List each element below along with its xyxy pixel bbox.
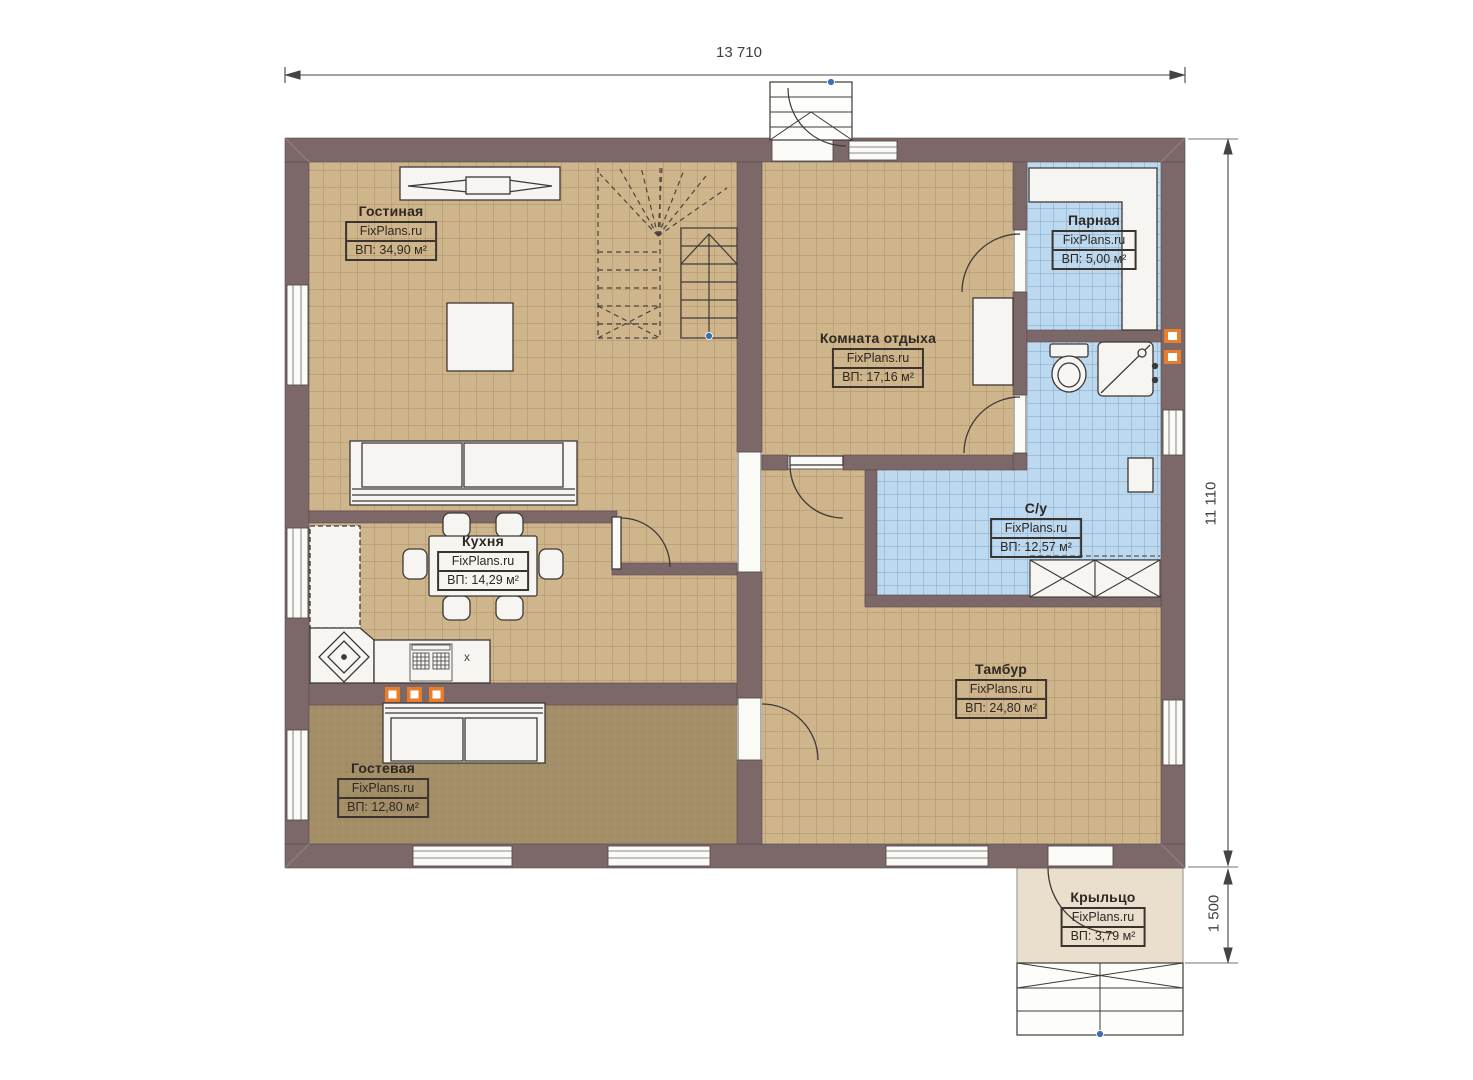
room-label-lounge: Комната отдыха FixPlans.ru ВП: 17,16 м² <box>820 330 936 388</box>
room-brand: FixPlans.ru <box>992 520 1080 539</box>
room-area: ВП: 17,16 м² <box>834 369 922 386</box>
sofa <box>350 441 577 505</box>
porch-steps <box>1017 963 1183 1038</box>
entry-steps-top <box>770 79 852 147</box>
window-bottom-3 <box>886 846 988 866</box>
room-name: Парная <box>1052 212 1137 228</box>
window-top <box>849 141 897 160</box>
coffee-table <box>447 303 513 371</box>
chair <box>496 596 523 620</box>
window-left-3 <box>287 730 308 820</box>
kitchen-door-leaf <box>612 517 621 569</box>
room-name: Гостиная <box>345 203 437 219</box>
entry-marker-top <box>828 79 835 86</box>
doorway-guest <box>738 698 761 760</box>
room-area: ВП: 12,57 м² <box>992 539 1080 556</box>
room-name: С/у <box>990 500 1082 516</box>
room-brand: FixPlans.ru <box>1054 232 1135 251</box>
chair <box>443 596 470 620</box>
room-area: ВП: 34,90 м² <box>347 242 435 259</box>
window-left-1 <box>287 285 308 385</box>
entry-opening-bottom <box>1048 846 1113 866</box>
dimension-height: 11 110 <box>1203 460 1220 548</box>
room-brand: FixPlans.ru <box>347 223 435 242</box>
dimension-porch-depth: 1 500 <box>1206 870 1223 958</box>
stair-start-marker <box>706 333 713 340</box>
room-name: Комната отдыха <box>820 330 936 346</box>
room-area: ВП: 5,00 м² <box>1054 251 1135 268</box>
floor-plan-drawing <box>0 0 1473 1080</box>
room-info-box: FixPlans.ru ВП: 24,80 м² <box>955 679 1047 719</box>
room-name: Гостевая <box>337 760 429 776</box>
guest-sofa <box>383 703 545 763</box>
room-label-living-room: Гостиная FixPlans.ru ВП: 34,90 м² <box>345 203 437 261</box>
room-info-box: FixPlans.ru ВП: 17,16 м² <box>832 348 924 388</box>
room-area: ВП: 12,80 м² <box>339 799 427 816</box>
room-label-kitchen: Кухня FixPlans.ru ВП: 14,29 м² <box>437 533 529 591</box>
chair <box>403 549 427 579</box>
room-brand: FixPlans.ru <box>957 681 1045 700</box>
room-brand: FixPlans.ru <box>1063 909 1144 928</box>
room-info-box: FixPlans.ru ВП: 34,90 м² <box>345 221 437 261</box>
lounge-door-leaf <box>790 456 843 465</box>
room-name: Кухня <box>437 533 529 549</box>
stove-marker-label: x <box>464 650 470 664</box>
room-info-box: FixPlans.ru ВП: 12,80 м² <box>337 778 429 818</box>
doorway-corridor <box>738 452 761 572</box>
room-brand: FixPlans.ru <box>439 553 527 572</box>
window-right-2 <box>1163 700 1183 765</box>
window-left-2 <box>287 528 308 618</box>
wardrobe <box>1030 556 1160 597</box>
room-info-box: FixPlans.ru ВП: 14,29 м² <box>437 551 529 591</box>
room-brand: FixPlans.ru <box>834 350 922 369</box>
room-brand: FixPlans.ru <box>339 780 427 799</box>
room-info-box: FixPlans.ru ВП: 3,79 м² <box>1061 907 1146 947</box>
floor-plan-page: Гостиная FixPlans.ru ВП: 34,90 м² Комнат… <box>0 0 1473 1080</box>
toilet <box>1050 344 1088 392</box>
entry-opening-top <box>772 140 833 161</box>
room-name: Тамбур <box>955 661 1047 677</box>
doorway-steam <box>1014 230 1026 292</box>
room-info-box: FixPlans.ru ВП: 5,00 м² <box>1052 230 1137 270</box>
room-label-porch: Крыльцо FixPlans.ru ВП: 3,79 м² <box>1061 889 1146 947</box>
chair <box>539 549 563 579</box>
stove <box>410 644 452 681</box>
room-label-bathroom: С/у FixPlans.ru ВП: 12,57 м² <box>990 500 1082 558</box>
room-label-vestibule: Тамбур FixPlans.ru ВП: 24,80 м² <box>955 661 1047 719</box>
bath-shelf <box>1128 458 1153 492</box>
room-area: ВП: 3,79 м² <box>1063 928 1144 945</box>
room-area: ВП: 24,80 м² <box>957 700 1045 717</box>
room-name: Крыльцо <box>1061 889 1146 905</box>
window-right-1 <box>1163 410 1183 455</box>
room-label-guest-room: Гостевая FixPlans.ru ВП: 12,80 м² <box>337 760 429 818</box>
doorway-bathroom <box>1014 395 1026 453</box>
dimension-width: 13 710 <box>685 44 793 61</box>
porch-marker <box>1097 1031 1104 1038</box>
shower-cabin <box>1098 342 1158 396</box>
room-label-steam-room: Парная FixPlans.ru ВП: 5,00 м² <box>1052 212 1137 270</box>
room-info-box: FixPlans.ru ВП: 12,57 м² <box>990 518 1082 558</box>
window-bottom-2 <box>608 846 710 866</box>
window-bottom-1 <box>413 846 512 866</box>
lounge-bench <box>973 298 1013 385</box>
room-area: ВП: 14,29 м² <box>439 572 527 589</box>
